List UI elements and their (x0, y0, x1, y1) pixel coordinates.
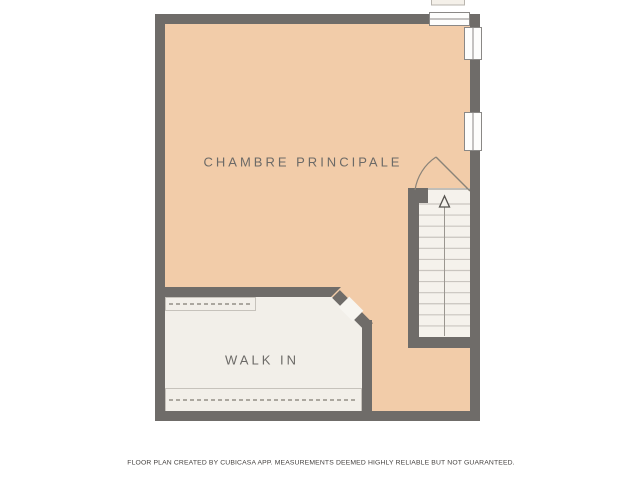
stairwell-bottom-wall (408, 337, 480, 348)
window-right-lower (465, 113, 482, 151)
floor-plan-drawing (0, 0, 640, 480)
outer-wall-right (470, 14, 480, 421)
window-right-upper (465, 28, 482, 60)
walkin-top-wall (155, 287, 341, 297)
stairwell-left-wall (408, 188, 419, 348)
walkin-right-wall (362, 320, 372, 411)
window-top (430, 13, 470, 26)
outer-wall-left (155, 14, 165, 421)
stair-door-stub-wall (408, 188, 428, 203)
footer-disclaimer: FLOOR PLAN CREATED BY CUBICASA APP. MEAS… (127, 460, 514, 467)
room-label-chambre-principale: CHAMBRE PRINCIPALE (204, 155, 403, 170)
room-label-walk-in: WALK IN (225, 353, 299, 368)
outer-wall-bottom (155, 411, 480, 421)
floor-plan-canvas: CHAMBRE PRINCIPALE WALK IN FLOOR PLAN CR… (0, 0, 640, 480)
partial-window-above-wall (432, 0, 465, 5)
